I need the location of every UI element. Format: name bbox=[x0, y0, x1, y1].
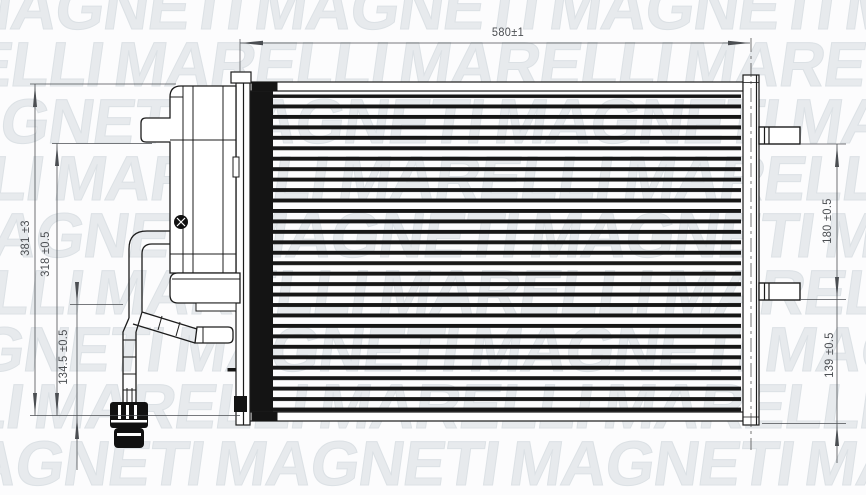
lower-flange bbox=[170, 273, 240, 303]
dim-label-left-lower: 134.5 ±0.5 bbox=[58, 329, 70, 384]
core-tubes bbox=[273, 95, 741, 413]
lower-port-stub bbox=[759, 283, 800, 300]
dim-label-left-overall: 381 ±3 bbox=[20, 220, 32, 256]
top-side-plate bbox=[250, 82, 743, 91]
upper-port-stub bbox=[759, 127, 800, 144]
receiver-drier bbox=[110, 86, 240, 448]
dim-label-top-width: 580±1 bbox=[492, 27, 524, 39]
fin-band bbox=[249, 88, 273, 415]
bottom-connector bbox=[110, 388, 148, 448]
receiver-body bbox=[141, 86, 236, 273]
right-tank bbox=[743, 38, 800, 450]
technical-drawing-canvas: MAGNETI MAGNETI MAGNETI MAGNETI MAGNETI … bbox=[0, 0, 866, 495]
dim-label-left-upper: 318 ±0.5 bbox=[40, 231, 52, 276]
diagonal-pipe bbox=[133, 312, 233, 343]
dim-label-right-upper: 180 ±0.5 bbox=[822, 198, 834, 243]
condenser-drawing bbox=[0, 0, 866, 495]
dim-label-right-lower: 139 ±0.5 bbox=[824, 332, 836, 377]
core bbox=[228, 72, 744, 425]
bottom-side-plate bbox=[250, 412, 743, 421]
top-left-tab bbox=[231, 72, 251, 83]
